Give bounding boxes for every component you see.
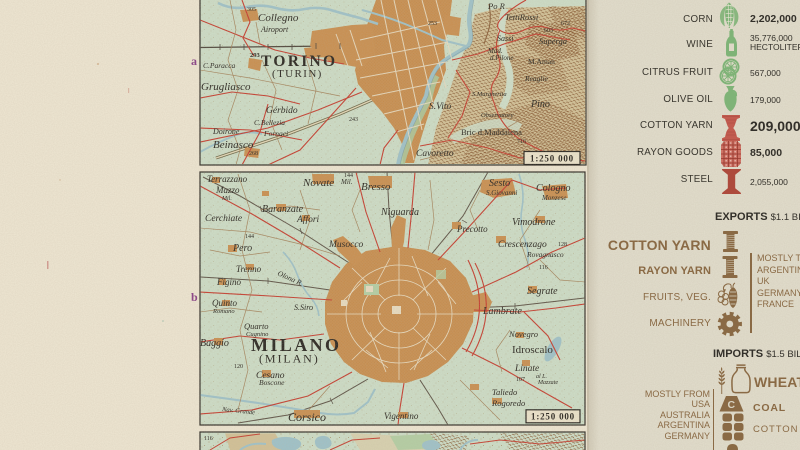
svg-text:b: b	[191, 290, 198, 304]
svg-text:a: a	[191, 54, 197, 68]
svg-text:C: C	[728, 399, 736, 411]
